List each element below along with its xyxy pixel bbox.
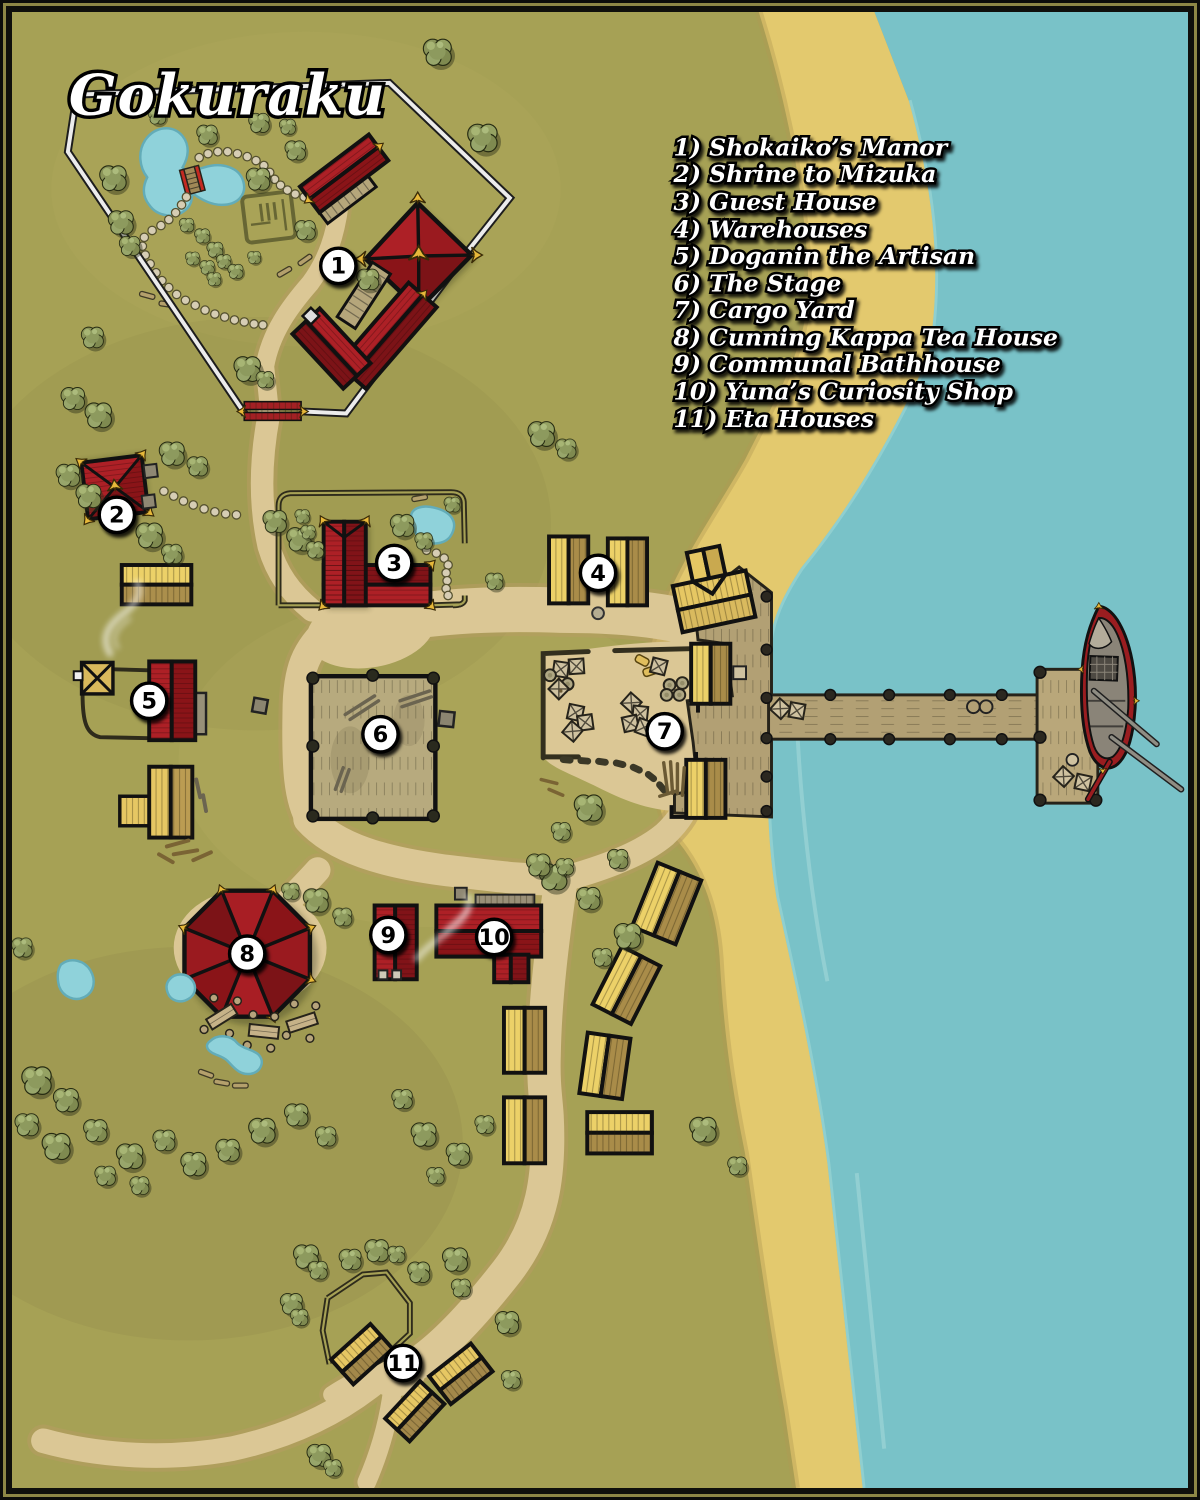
map-marker-3: 3 xyxy=(377,545,412,580)
svg-text:6: 6 xyxy=(373,722,389,748)
svg-text:8: 8 xyxy=(239,942,255,968)
map-frame-inner: 1 2 3 4 5 6 7 8 9 10 11 Gokuraku 1) Shok… xyxy=(6,6,1194,1494)
legend-item-11: 11) Eta Houses xyxy=(674,405,875,433)
legend-item-3: 3) Guest House xyxy=(674,188,877,216)
svg-text:7: 7 xyxy=(657,719,673,745)
legend-item-8: 8) Cunning Kappa Tea House xyxy=(673,324,1058,352)
svg-text:5: 5 xyxy=(141,689,157,715)
map-marker-9: 9 xyxy=(371,917,406,952)
pond-tea-1 xyxy=(166,974,195,1001)
svg-text:3: 3 xyxy=(386,551,402,577)
legend-item-4: 4) Warehouses xyxy=(674,215,868,243)
svg-text:11: 11 xyxy=(387,1351,418,1377)
gokuraku-map: 1 2 3 4 5 6 7 8 9 10 11 Gokuraku 1) Shok… xyxy=(12,12,1188,1488)
map-marker-5: 5 xyxy=(132,683,167,718)
manor-gate xyxy=(237,402,308,421)
building-warehouse-h xyxy=(587,1112,652,1153)
map-frame: 1 2 3 4 5 6 7 8 9 10 11 Gokuraku 1) Shok… xyxy=(0,0,1200,1500)
map-marker-4: 4 xyxy=(580,555,615,590)
map-marker-11: 11 xyxy=(385,1345,420,1380)
pond-west xyxy=(58,960,94,999)
svg-text:9: 9 xyxy=(380,923,396,949)
map-title: Gokuraku xyxy=(69,62,386,128)
building-storehouse-west xyxy=(122,565,192,604)
svg-text:10: 10 xyxy=(478,925,509,951)
legend-item-6: 6) The Stage xyxy=(674,269,842,297)
svg-text:4: 4 xyxy=(590,561,606,587)
map-marker-6: 6 xyxy=(363,717,398,752)
legend-item-2: 2) Shrine to Mizuka xyxy=(673,160,937,188)
map-marker-2: 2 xyxy=(99,497,134,532)
legend-item-1: 1) Shokaiko’s Manor xyxy=(674,134,949,162)
building-warehouse-e xyxy=(504,1008,545,1073)
svg-text:1: 1 xyxy=(330,254,346,280)
map-marker-10: 10 xyxy=(477,919,512,954)
building-warehouse-g xyxy=(504,1097,545,1163)
svg-text:2: 2 xyxy=(109,503,125,529)
legend-item-7: 7) Cargo Yard xyxy=(674,296,855,324)
building-warehouse-f xyxy=(579,1033,630,1099)
legend-item-9: 9) Communal Bathhouse xyxy=(674,350,1001,378)
legend-item-10: 10) Yuna’s Curiosity Shop xyxy=(674,378,1014,406)
map-marker-1: 1 xyxy=(321,248,356,283)
map-marker-8: 8 xyxy=(230,936,265,971)
legend-item-5: 5) Doganin the Artisan xyxy=(674,242,976,270)
map-marker-7: 7 xyxy=(647,714,682,749)
